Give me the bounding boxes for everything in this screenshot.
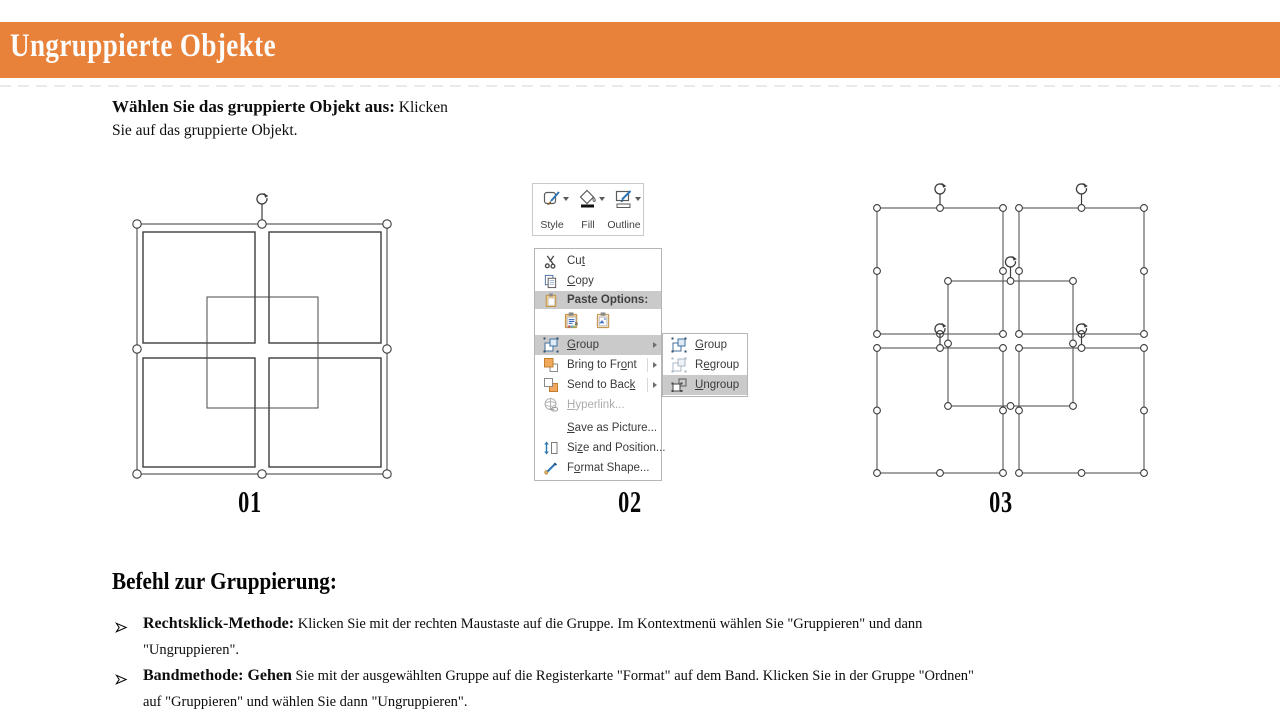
svg-text:a: a: [574, 321, 578, 327]
intro-text: Wählen Sie das gruppierte Objekt aus: Kl…: [112, 95, 464, 142]
menu-item-label: Send to Back: [561, 379, 647, 391]
arrow-bullet-icon: [115, 617, 128, 630]
menu-item-group[interactable]: Group: [535, 335, 661, 355]
blank-icon: [540, 420, 561, 436]
dropdown-caret-icon: [563, 197, 569, 201]
menu-item-format-shape[interactable]: Format Shape...: [535, 458, 661, 478]
menu-item-paste-options: Paste Options:: [535, 291, 661, 309]
regroup-icon: [668, 357, 689, 373]
fill-button[interactable]: Fill: [570, 187, 606, 234]
menu-item-label: Bring to Front: [561, 359, 647, 371]
shape-style-icon: [542, 196, 562, 213]
shape-outline-icon: [614, 196, 634, 213]
send-to-back-icon: [540, 377, 561, 393]
paste-as-picture-button[interactable]: [592, 311, 614, 333]
figure-label-03: 03: [976, 484, 1026, 520]
menu-item-label: Copy: [561, 275, 658, 287]
menu-item-label: Format Shape...: [561, 462, 658, 474]
toolbar-button-label: Fill: [581, 219, 594, 231]
method-lead: Bandmethode: Gehen: [143, 667, 292, 684]
paste-picture-icon: [594, 311, 613, 333]
figure-label-01: 01: [225, 484, 275, 520]
submenu-item-regroup[interactable]: Regroup: [663, 355, 747, 375]
submenu-item-group[interactable]: Group: [663, 335, 747, 355]
dropdown-caret-icon: [635, 197, 641, 201]
page-title: Ungruppierte Objekte: [10, 28, 276, 65]
menu-item-copy[interactable]: Copy: [535, 271, 661, 291]
menu-item-cut[interactable]: Cut: [535, 251, 661, 271]
submenu-arrow-icon: [647, 358, 658, 372]
toolbar-button-label: Style: [540, 219, 563, 231]
ungroup-icon: [668, 377, 689, 393]
menu-item-label: Paste Options:: [561, 294, 658, 306]
shape-fill-icon: [578, 196, 598, 213]
clipboard-icon: [540, 292, 561, 308]
section-heading: Befehl zur Gruppierung:: [112, 569, 337, 596]
submenu-arrow-icon: [647, 378, 658, 392]
method-item: Bandmethode: Gehen Sie mit der ausgewähl…: [115, 663, 977, 715]
paste-keep-source-formatting-button[interactable]: a: [561, 311, 583, 333]
menu-item-bring-to-front[interactable]: Bring to Front: [535, 355, 661, 375]
menu-item-label: Size and Position...: [561, 442, 665, 454]
submenu-item-ungroup[interactable]: Ungroup: [663, 375, 747, 395]
submenu-arrow-icon: [647, 338, 658, 352]
header-bar: Ungruppierte Objekte: [0, 22, 1280, 78]
format-shape-icon: [540, 460, 561, 476]
copy-icon: [540, 273, 561, 289]
figure-03-ungrouped-objects: [868, 178, 1158, 485]
menu-item-label: Group: [561, 339, 647, 351]
size-position-icon: [540, 440, 561, 456]
dropdown-caret-icon: [599, 197, 605, 201]
paste-keep-source-icon: a: [563, 311, 582, 333]
group-submenu: GroupRegroupUngroup: [662, 333, 748, 397]
menu-item-size-and-position[interactable]: Size and Position...: [535, 438, 661, 458]
outline-button[interactable]: Outline: [606, 187, 642, 234]
toolbar-button-label: Outline: [607, 219, 640, 231]
method-lead: Rechtsklick-Methode:: [143, 615, 294, 632]
method-item: Rechtsklick-Methode: Klicken Sie mit der…: [115, 611, 977, 663]
mini-toolbar: StyleFillOutline: [532, 183, 644, 236]
menu-item-hyperlink[interactable]: Hyperlink...: [535, 395, 661, 415]
method-list: Rechtsklick-Methode: Klicken Sie mit der…: [115, 611, 977, 715]
group-icon: [540, 337, 561, 353]
menu-item-label: Group: [689, 339, 744, 351]
menu-item-label: Ungroup: [689, 379, 744, 391]
arrow-bullet-icon: [115, 669, 128, 682]
hyperlink-icon: [540, 397, 561, 413]
group-icon: [668, 337, 689, 353]
figure-01-grouped-object: [120, 183, 405, 493]
menu-item-label: Regroup: [689, 359, 744, 371]
bring-to-front-icon: [540, 357, 561, 373]
menu-item-send-to-back[interactable]: Send to Back: [535, 375, 661, 395]
figure-label-02: 02: [605, 484, 655, 520]
menu-item-label: Hyperlink...: [561, 399, 658, 411]
menu-item-label: Save as Picture...: [561, 422, 658, 434]
style-button[interactable]: Style: [534, 187, 570, 234]
intro-lead: Wählen Sie das gruppierte Objekt aus:: [112, 97, 395, 116]
slide: Ungruppierte Objekte Wählen Sie das grup…: [0, 0, 1280, 720]
paste-options-row: a: [535, 309, 661, 335]
scissors-icon: [540, 253, 561, 269]
context-menu: CutCopyPaste Options:aGroupBring to Fron…: [534, 248, 662, 481]
decorative-dashed-rule: [0, 85, 1280, 87]
menu-item-label: Cut: [561, 255, 658, 267]
menu-item-save-as-picture[interactable]: Save as Picture...: [535, 418, 661, 438]
